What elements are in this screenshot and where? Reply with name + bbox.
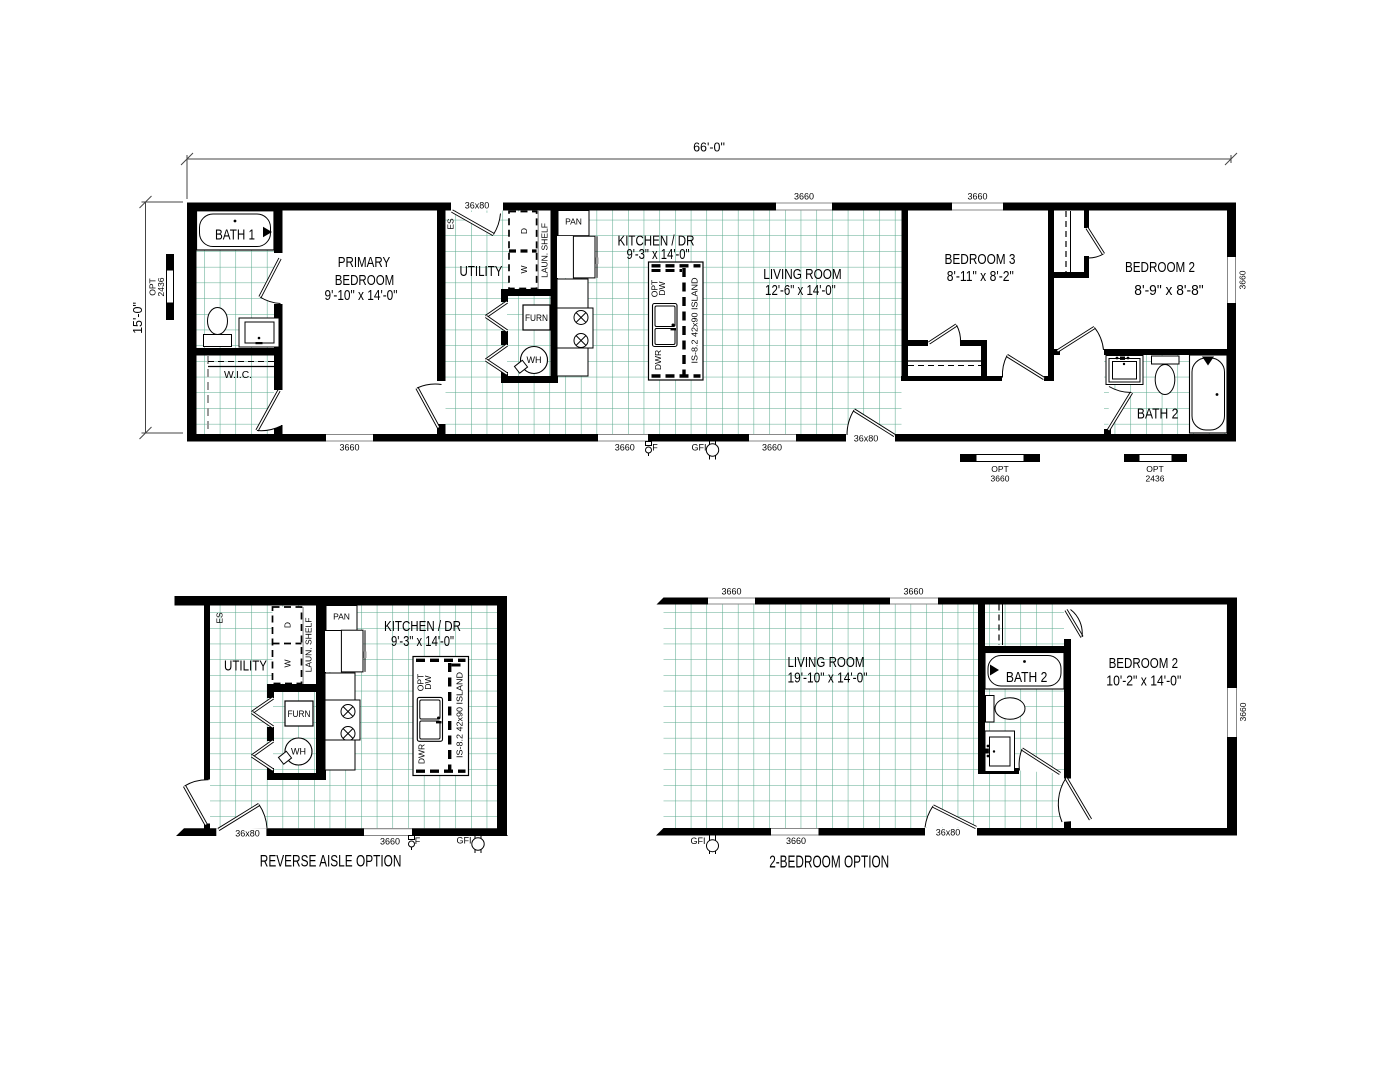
svg-text:3660: 3660	[991, 474, 1010, 484]
svg-text:8'-11" x 8'-2": 8'-11" x 8'-2"	[947, 268, 1014, 285]
svg-text:BEDROOM 2: BEDROOM 2	[1125, 259, 1195, 276]
svg-text:BATH 2: BATH 2	[1006, 669, 1047, 686]
svg-text:ES: ES	[446, 218, 456, 230]
svg-text:D: D	[519, 228, 529, 234]
svg-text:BATH 2: BATH 2	[1137, 406, 1178, 423]
svg-text:UTILITY: UTILITY	[224, 658, 267, 675]
svg-text:IS-8.2 42x90 ISLAND: IS-8.2 42x90 ISLAND	[690, 278, 700, 364]
svg-text:3660: 3660	[967, 192, 987, 202]
svg-text:66'-0": 66'-0"	[693, 140, 725, 154]
svg-text:W.I.C.: W.I.C.	[224, 369, 252, 381]
svg-text:9'-3" x 14'-0": 9'-3" x 14'-0"	[391, 633, 454, 650]
svg-text:36x80: 36x80	[465, 201, 490, 211]
svg-text:3660: 3660	[762, 443, 782, 453]
svg-text:PAN: PAN	[333, 612, 350, 622]
svg-text:3660: 3660	[1238, 270, 1248, 289]
svg-text:F: F	[652, 443, 658, 453]
svg-text:3660: 3660	[615, 443, 635, 453]
svg-text:IS-8.2 42x90 ISLAND: IS-8.2 42x90 ISLAND	[455, 672, 465, 758]
svg-text:GFI: GFI	[692, 443, 707, 453]
svg-text:FURN: FURN	[288, 709, 311, 720]
svg-text:OPT: OPT	[991, 464, 1008, 474]
svg-text:ES: ES	[215, 612, 225, 624]
svg-text:DWR: DWR	[417, 744, 427, 764]
svg-text:3660: 3660	[786, 836, 806, 846]
svg-text:15'-0": 15'-0"	[131, 302, 145, 334]
svg-text:GFI: GFI	[691, 836, 706, 846]
svg-text:9'-10" x 14'-0": 9'-10" x 14'-0"	[325, 287, 398, 304]
svg-text:BEDROOM 2: BEDROOM 2	[1109, 655, 1178, 672]
svg-text:19'-10" x 14'-0": 19'-10" x 14'-0"	[788, 670, 868, 687]
svg-text:D: D	[283, 622, 293, 628]
svg-text:GFI: GFI	[457, 836, 472, 846]
svg-text:2-BEDROOM OPTION: 2-BEDROOM OPTION	[769, 852, 889, 872]
svg-text:10'-2" x 14'-0": 10'-2" x 14'-0"	[1106, 673, 1181, 690]
svg-text:DW: DW	[423, 675, 433, 689]
svg-text:PAN: PAN	[565, 217, 582, 227]
svg-text:LAUN. SHELF: LAUN. SHELF	[304, 618, 314, 673]
svg-text:3660: 3660	[794, 192, 814, 202]
svg-text:9'-3" x 14'-0": 9'-3" x 14'-0"	[627, 246, 690, 263]
svg-text:3660: 3660	[380, 837, 400, 847]
svg-text:LIVING ROOM: LIVING ROOM	[763, 266, 841, 283]
svg-text:UTILITY: UTILITY	[460, 263, 503, 280]
svg-text:F: F	[415, 836, 421, 846]
svg-text:3660: 3660	[1238, 702, 1248, 721]
svg-text:12'-6" x 14'-0": 12'-6" x 14'-0"	[765, 282, 836, 299]
svg-text:LAUN. SHELF: LAUN. SHELF	[540, 223, 550, 278]
svg-text:FURN: FURN	[525, 313, 548, 324]
svg-text:8'-9" x 8'-8": 8'-9" x 8'-8"	[1134, 282, 1203, 299]
svg-text:2436: 2436	[156, 277, 166, 296]
svg-text:PRIMARY: PRIMARY	[338, 254, 391, 271]
svg-text:3660: 3660	[339, 443, 359, 453]
svg-text:OPT: OPT	[1146, 464, 1163, 474]
svg-text:W: W	[519, 265, 529, 273]
svg-text:DWR: DWR	[653, 350, 663, 370]
svg-text:DW: DW	[657, 281, 667, 295]
svg-text:LIVING ROOM: LIVING ROOM	[788, 654, 865, 671]
svg-text:3660: 3660	[903, 587, 923, 597]
svg-text:3660: 3660	[721, 587, 741, 597]
svg-text:W: W	[283, 659, 293, 667]
svg-text:2436: 2436	[1146, 474, 1165, 484]
svg-text:36x80: 36x80	[235, 829, 260, 839]
svg-text:REVERSE AISLE OPTION: REVERSE AISLE OPTION	[260, 851, 402, 870]
svg-text:BATH 1: BATH 1	[215, 227, 255, 244]
svg-text:WH: WH	[291, 747, 306, 757]
svg-text:36x80: 36x80	[936, 828, 961, 838]
svg-text:BEDROOM 3: BEDROOM 3	[945, 251, 1016, 268]
svg-text:WH: WH	[527, 355, 542, 365]
